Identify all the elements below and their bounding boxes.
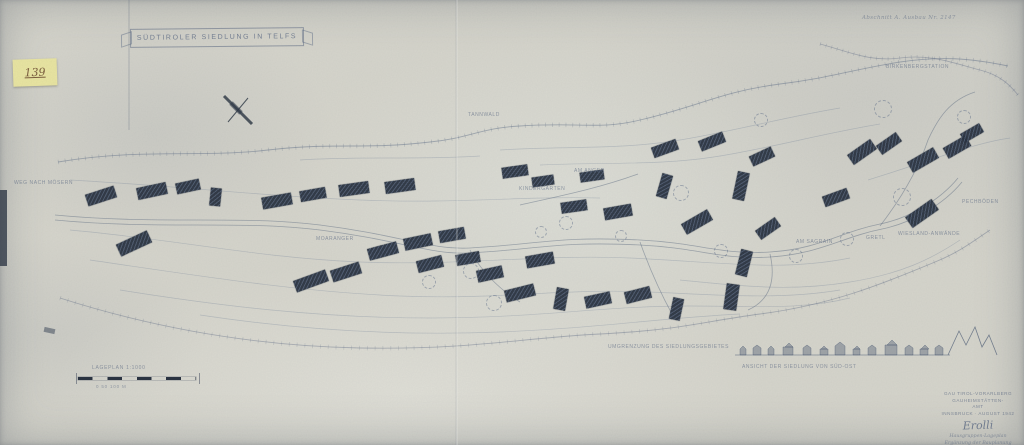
architect-signature: Erolli bbox=[934, 417, 1022, 433]
plan-label: AM SAGRAIN bbox=[796, 239, 833, 245]
tree-symbol bbox=[874, 100, 892, 118]
tree-symbol bbox=[463, 263, 479, 279]
scale-label: LAGEPLAN 1:1000 bbox=[92, 365, 146, 371]
inventory-number: 139 bbox=[24, 66, 45, 80]
inventory-sticker: 139 bbox=[13, 58, 58, 87]
tree-symbol bbox=[754, 113, 768, 127]
north-arrow-strike bbox=[224, 96, 252, 124]
tree-symbol bbox=[673, 185, 689, 201]
fold-crease bbox=[455, 0, 458, 445]
title-block-line: GAUHEIMSTÄTTEN- bbox=[934, 398, 1022, 405]
title-block: GAU TIROL-VORARLBERGGAUHEIMSTÄTTEN-AMTIN… bbox=[934, 391, 1022, 445]
title-block-subline: Ergänzung der Bauplanung bbox=[934, 440, 1022, 445]
tree-symbol bbox=[559, 216, 573, 230]
tree-symbol bbox=[893, 188, 911, 206]
plan-label: ANSICHT DER SIEDLUNG VON SÜD-OST bbox=[742, 364, 856, 370]
edge-mark bbox=[0, 190, 7, 266]
tree-symbol bbox=[486, 295, 502, 311]
plan-label: KINDERGARTEN bbox=[519, 186, 565, 192]
scanned-site-plan-sheet: WEG NACH MÖSERNTANNWALDKINDERGARTENAM AN… bbox=[0, 0, 1024, 445]
plan-label: GRETL bbox=[866, 235, 885, 241]
tree-symbol bbox=[615, 230, 627, 242]
title-banner-text: SÜDTIROLER SIEDLUNG IN TELFS bbox=[137, 33, 297, 42]
title-block-sublines: Hausgruppen-LageplanErgänzung der Baupla… bbox=[934, 433, 1022, 445]
tree-symbol bbox=[840, 232, 854, 246]
scale-bar bbox=[78, 377, 196, 380]
handwritten-annotation: Abschnitt A. Ausbau Nr. 2147 bbox=[862, 15, 956, 21]
building-footprint bbox=[209, 187, 222, 206]
tree-symbol bbox=[957, 110, 971, 124]
plan-label: WIESLAND-ANWÄNDE bbox=[898, 231, 960, 237]
plan-label: MOARANGER bbox=[316, 236, 354, 242]
title-block-subline: Hausgruppen-Lageplan bbox=[934, 433, 1022, 440]
tree-symbol bbox=[422, 275, 436, 289]
plan-label: PECHBÖDEN bbox=[962, 199, 999, 205]
tree-symbol bbox=[789, 249, 803, 263]
plan-label: AM ANGER bbox=[574, 168, 605, 174]
fold-crease-top bbox=[128, 0, 130, 130]
elevation-sketch bbox=[735, 327, 997, 355]
plan-label: UMGRENZUNG DES SIEDLUNGSGEBIETES bbox=[608, 344, 729, 350]
scale-values: 0 50 100 M bbox=[96, 384, 127, 389]
plan-label: WEG NACH MÖSERN bbox=[14, 180, 73, 186]
title-block-lines: GAU TIROL-VORARLBERGGAUHEIMSTÄTTEN-AMTIN… bbox=[934, 391, 1022, 418]
title-block-line: AMT bbox=[934, 404, 1022, 411]
plan-label: TANNWALD bbox=[468, 112, 500, 118]
plan-label: BIRKENBERGSTATION bbox=[886, 64, 949, 70]
roads bbox=[55, 92, 975, 314]
tree-symbol bbox=[535, 226, 547, 238]
title-block-line: INNSBRUCK · AUGUST 1942 bbox=[934, 411, 1022, 418]
tree-symbol bbox=[714, 244, 728, 258]
title-block-line: GAU TIROL-VORARLBERG bbox=[934, 391, 1022, 398]
title-banner: SÜDTIROLER SIEDLUNG IN TELFS bbox=[130, 27, 304, 48]
